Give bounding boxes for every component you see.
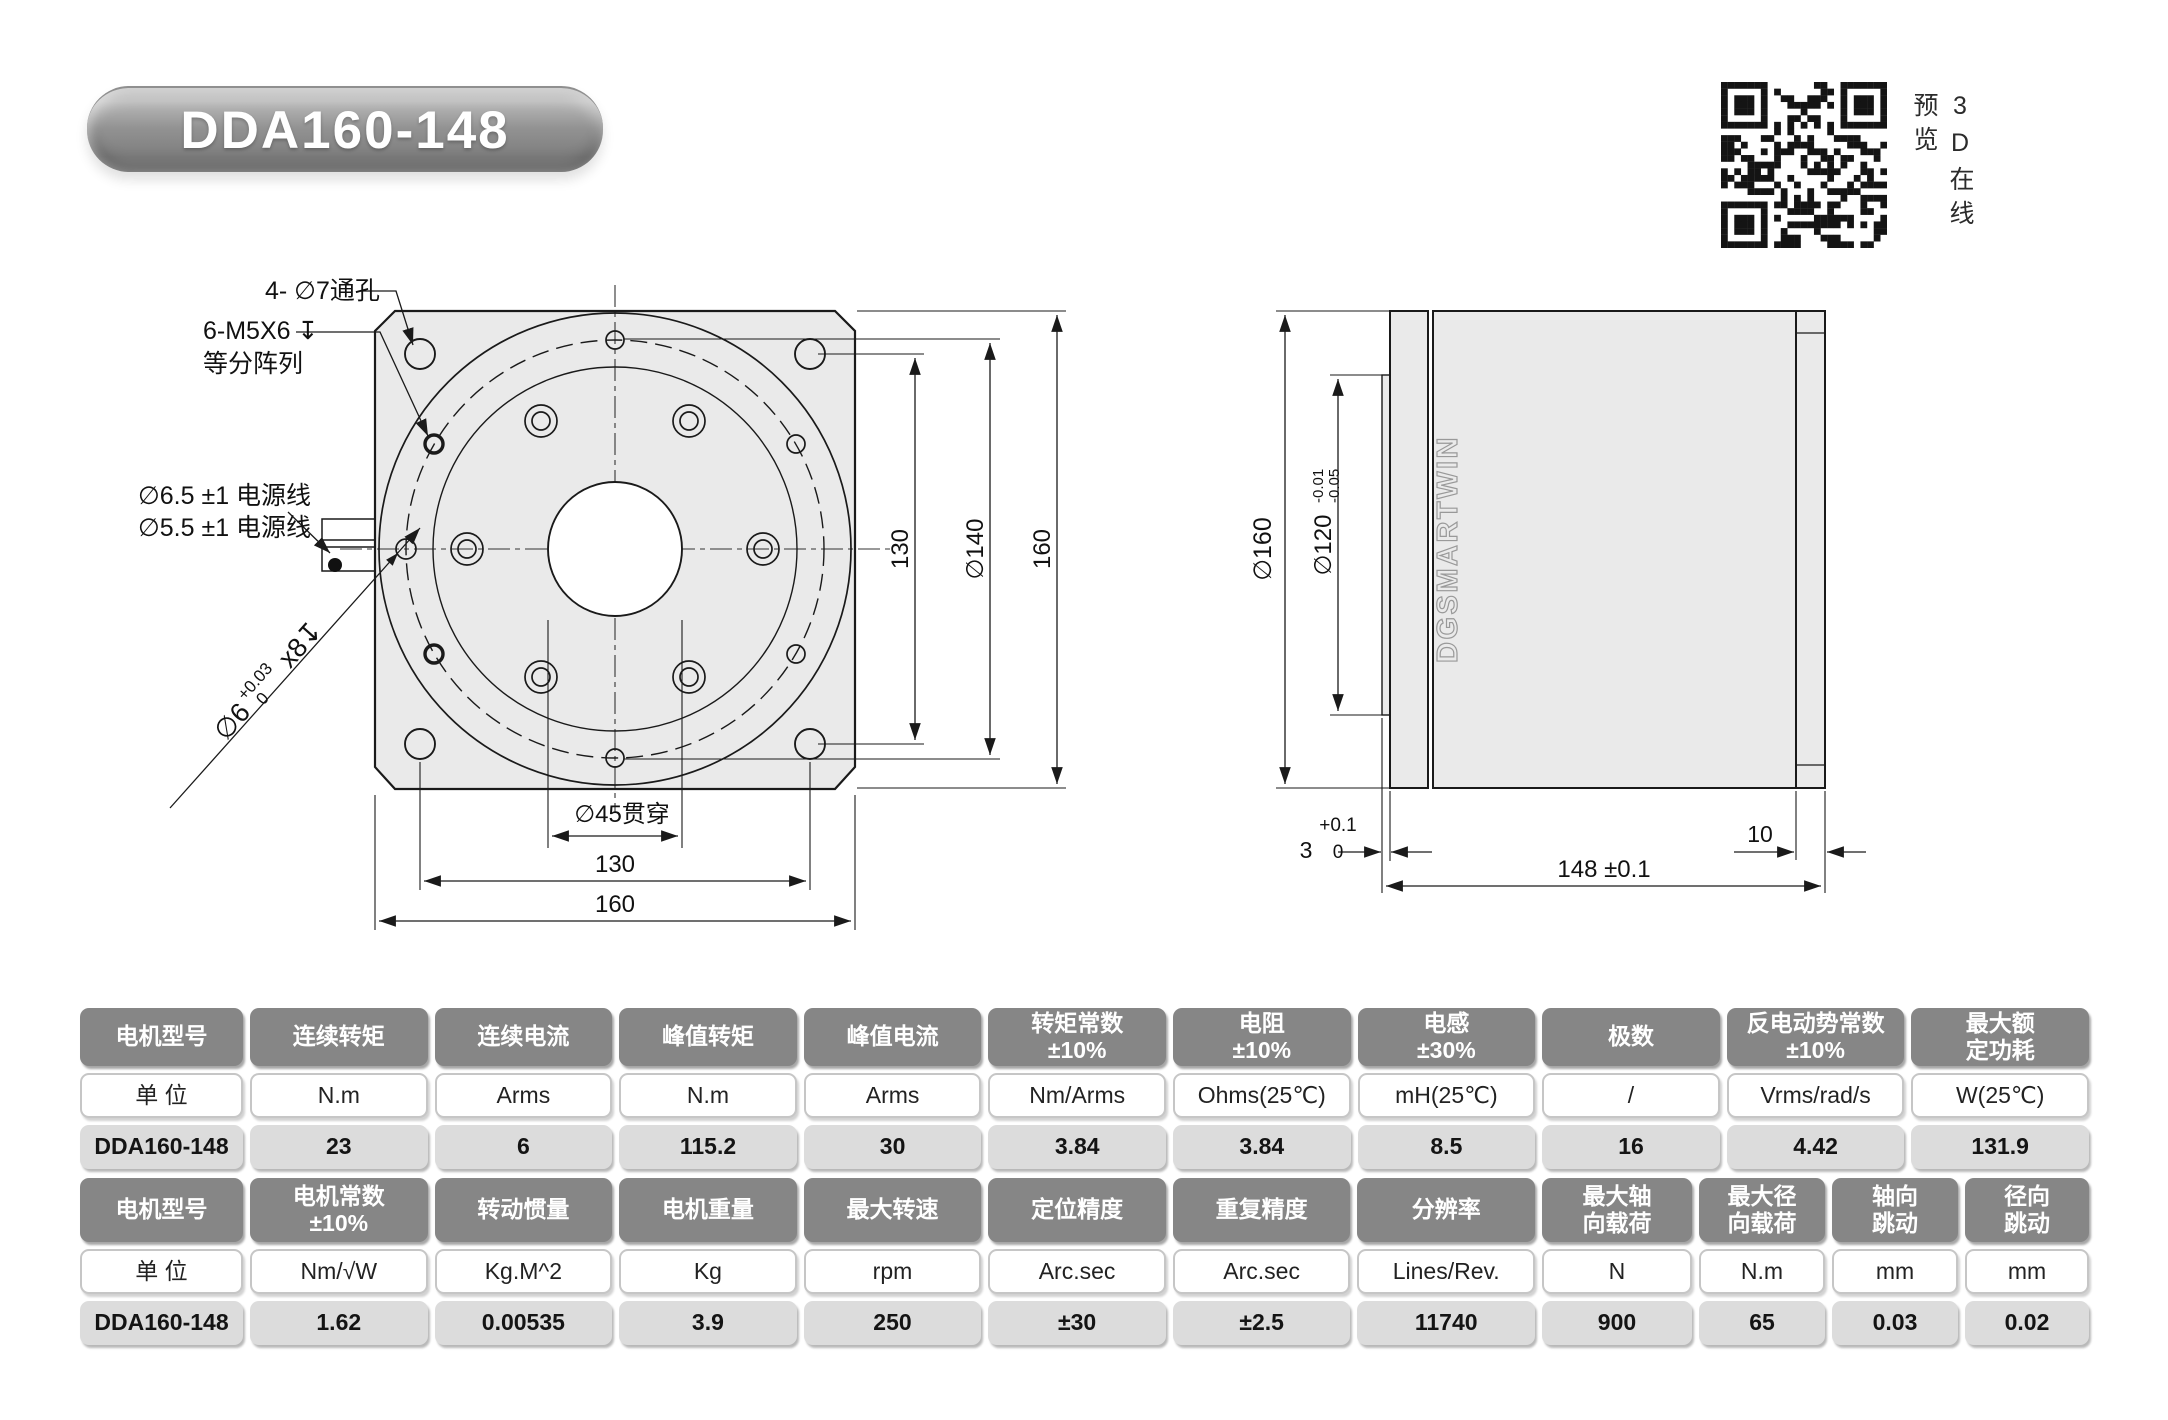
t2-value-cell: 900 xyxy=(1542,1301,1692,1345)
t2-unit-cell: Arc.sec xyxy=(988,1249,1166,1294)
t2-unit-cell: Kg xyxy=(619,1249,797,1294)
t2-value-cell: 0.03 xyxy=(1832,1301,1958,1345)
t2-unit-cell: mm xyxy=(1832,1249,1958,1294)
t1-value-cell: 16 xyxy=(1542,1125,1720,1169)
datasheet-page: DDA160-148 3D在线预览 xyxy=(0,0,2168,1420)
side-view-drawing: DGSMARTWIN ∅160 xyxy=(1249,311,1866,893)
rear-cap xyxy=(1796,311,1825,788)
t1-unit-cell: Arms xyxy=(435,1073,613,1118)
boss-nominal: 3 xyxy=(1300,837,1313,863)
center-through-hole xyxy=(548,482,682,616)
annotation-cable-2: ∅5.5 ±1 电源线 xyxy=(138,514,311,542)
t1-header-cell: 峰值电流 xyxy=(804,1008,982,1066)
t1-value-cell: 8.5 xyxy=(1358,1125,1536,1169)
t2-header-cell: 重复精度 xyxy=(1173,1178,1351,1242)
t1-header-cell: 电感 ±30% xyxy=(1358,1008,1536,1066)
front-annotations: 4- ∅7通孔 6-M5X6 ↧ 等分阵列 ∅6.5 ±1 电源线 ∅5.5 ±… xyxy=(138,277,380,747)
t1-unit-cell: 单 位 xyxy=(80,1073,243,1118)
t2-unit-cell: rpm xyxy=(804,1249,982,1294)
boss-tol-up: +0.1 xyxy=(1319,815,1357,836)
t2-unit-cell: mm xyxy=(1965,1249,2089,1294)
t2-header-cell: 最大转速 xyxy=(804,1178,982,1242)
t2-header-cell: 轴向 跳动 xyxy=(1832,1178,1958,1242)
tol-low: -0.05 xyxy=(1326,469,1343,503)
table2-header-row: 电机型号 电机常数 ±10% 转动惯量 电机重量 最大转速 定位精度 重复精度 … xyxy=(80,1178,2089,1242)
pilot-boss xyxy=(1382,375,1390,715)
t2-unit-cell: Lines/Rev. xyxy=(1357,1249,1535,1294)
t1-unit-cell: N.m xyxy=(250,1073,428,1118)
dim-label: 148 ±0.1 xyxy=(1557,856,1650,883)
dim-label: ∅140 xyxy=(962,519,989,580)
t1-value-cell: 30 xyxy=(804,1125,982,1169)
t2-value-cell: 1.62 xyxy=(250,1301,428,1345)
t1-header-cell: 最大额 定功耗 xyxy=(1911,1008,2089,1066)
table2-value-row: DDA160-148 1.62 0.00535 3.9 250 ±30 ±2.5… xyxy=(80,1301,2089,1345)
t2-unit-cell: Arc.sec xyxy=(1173,1249,1351,1294)
t2-header-cell: 最大轴 向载荷 xyxy=(1542,1178,1692,1242)
t1-header-cell: 极数 xyxy=(1542,1008,1720,1066)
t2-value-cell: 3.9 xyxy=(619,1301,797,1345)
t1-header-cell: 电机型号 xyxy=(80,1008,243,1066)
pin-tol-low: 0 xyxy=(252,689,273,709)
annotation-cable-1: ∅6.5 ±1 电源线 xyxy=(138,482,311,510)
table1-unit-row: 单 位 N.m Arms N.m Arms Nm/Arms Ohms(25℃) … xyxy=(80,1073,2089,1118)
table2-unit-row: 单 位 Nm/√W Kg.M^2 Kg rpm Arc.sec Arc.sec … xyxy=(80,1249,2089,1294)
t1-unit-cell: Ohms(25℃) xyxy=(1173,1073,1351,1118)
motor-body xyxy=(1433,311,1796,788)
t2-unit-cell: 单 位 xyxy=(80,1249,243,1294)
t1-header-cell: 连续转矩 xyxy=(250,1008,428,1066)
t1-unit-cell: Nm/Arms xyxy=(988,1073,1166,1118)
spec-tables: 电机型号 连续转矩 连续电流 峰值转矩 峰值电流 转矩常数 ±10% 电阻 ±1… xyxy=(80,1008,2089,1352)
t1-unit-cell: Vrms/rad/s xyxy=(1727,1073,1905,1118)
t1-header-cell: 电阻 ±10% xyxy=(1173,1008,1351,1066)
annotation-pin-holes: ∅6 +0.03 0 x8↧ xyxy=(205,612,330,747)
t1-value-cell: 3.84 xyxy=(1173,1125,1351,1169)
t1-value-cell: 23 xyxy=(250,1125,428,1169)
t1-unit-cell: / xyxy=(1542,1073,1720,1118)
t2-header-cell: 定位精度 xyxy=(988,1178,1166,1242)
t2-unit-cell: Kg.M^2 xyxy=(435,1249,613,1294)
t2-header-cell: 电机型号 xyxy=(80,1178,243,1242)
pin-count: x8↧ xyxy=(272,615,328,673)
t2-value-cell: 0.02 xyxy=(1965,1301,2089,1345)
t2-value-cell: 0.00535 xyxy=(435,1301,613,1345)
annotation-corner-holes: 4- ∅7通孔 xyxy=(265,277,380,305)
t2-value-cell: ±30 xyxy=(988,1301,1166,1345)
t1-header-cell: 连续电流 xyxy=(435,1008,613,1066)
t2-unit-cell: N.m xyxy=(1699,1249,1825,1294)
t1-header-cell: 转矩常数 ±10% xyxy=(988,1008,1166,1066)
t2-value-cell: DDA160-148 xyxy=(80,1301,243,1345)
boss-tol-low: 0 xyxy=(1333,842,1344,863)
t2-value-cell: ±2.5 xyxy=(1173,1301,1351,1345)
t2-value-cell: 250 xyxy=(804,1301,982,1345)
t1-unit-cell: Arms xyxy=(804,1073,982,1118)
t2-unit-cell: N xyxy=(1542,1249,1692,1294)
t1-value-cell: DDA160-148 xyxy=(80,1125,243,1169)
t2-header-cell: 径向 跳动 xyxy=(1965,1178,2089,1242)
pin-dia: ∅6 xyxy=(208,697,256,746)
t1-header-cell: 反电动势常数 ±10% xyxy=(1727,1008,1905,1066)
dim-label: 160 xyxy=(595,891,635,918)
front-view-drawing: ∅45贯穿 130 160 130 ∅140 160 4- ∅7通孔 6-M5X… xyxy=(138,277,1066,930)
t1-value-cell: 4.42 xyxy=(1727,1125,1905,1169)
t1-unit-cell: N.m xyxy=(619,1073,797,1118)
rotor-flange xyxy=(1390,311,1428,788)
t2-header-cell: 分辨率 xyxy=(1357,1178,1535,1242)
table1-value-row: DDA160-148 23 6 115.2 30 3.84 3.84 8.5 1… xyxy=(80,1125,2089,1169)
t1-value-cell: 6 xyxy=(435,1125,613,1169)
t2-header-cell: 电机常数 ±10% xyxy=(250,1178,428,1242)
dim-label: 130 xyxy=(595,851,635,878)
t1-header-cell: 峰值转矩 xyxy=(619,1008,797,1066)
annotation-tapped-2: 等分阵列 xyxy=(203,350,303,378)
t1-value-cell: 131.9 xyxy=(1911,1125,2089,1169)
dim-label: 130 xyxy=(887,529,914,569)
t2-header-cell: 电机重量 xyxy=(619,1178,797,1242)
t2-header-cell: 最大径 向载荷 xyxy=(1699,1178,1825,1242)
t1-unit-cell: W(25℃) xyxy=(1911,1073,2089,1118)
t2-value-cell: 65 xyxy=(1699,1301,1825,1345)
cable-block-upper xyxy=(322,519,375,540)
annotation-tapped-1: 6-M5X6 ↧ xyxy=(203,317,318,345)
dim-label: ∅45贯穿 xyxy=(574,801,670,828)
t1-unit-cell: mH(25℃) xyxy=(1358,1073,1536,1118)
dim-label: 10 xyxy=(1747,821,1773,847)
tol-up: -0.01 xyxy=(1310,469,1327,503)
brand-text: DGSMARTWIN xyxy=(1432,435,1464,663)
cable-dot xyxy=(328,558,342,572)
t1-value-cell: 3.84 xyxy=(988,1125,1166,1169)
dim-label: ∅120 xyxy=(1310,515,1337,576)
t2-header-cell: 转动惯量 xyxy=(435,1178,613,1242)
t1-value-cell: 115.2 xyxy=(619,1125,797,1169)
dim-label: 160 xyxy=(1029,529,1056,569)
t2-unit-cell: Nm/√W xyxy=(250,1249,428,1294)
table1-header-row: 电机型号 连续转矩 连续电流 峰值转矩 峰值电流 转矩常数 ±10% 电阻 ±1… xyxy=(80,1008,2089,1066)
t2-value-cell: 11740 xyxy=(1357,1301,1535,1345)
technical-drawings: ∅45贯穿 130 160 130 ∅140 160 4- ∅7通孔 6-M5X… xyxy=(0,0,2168,980)
dim-label: ∅160 xyxy=(1249,517,1277,581)
